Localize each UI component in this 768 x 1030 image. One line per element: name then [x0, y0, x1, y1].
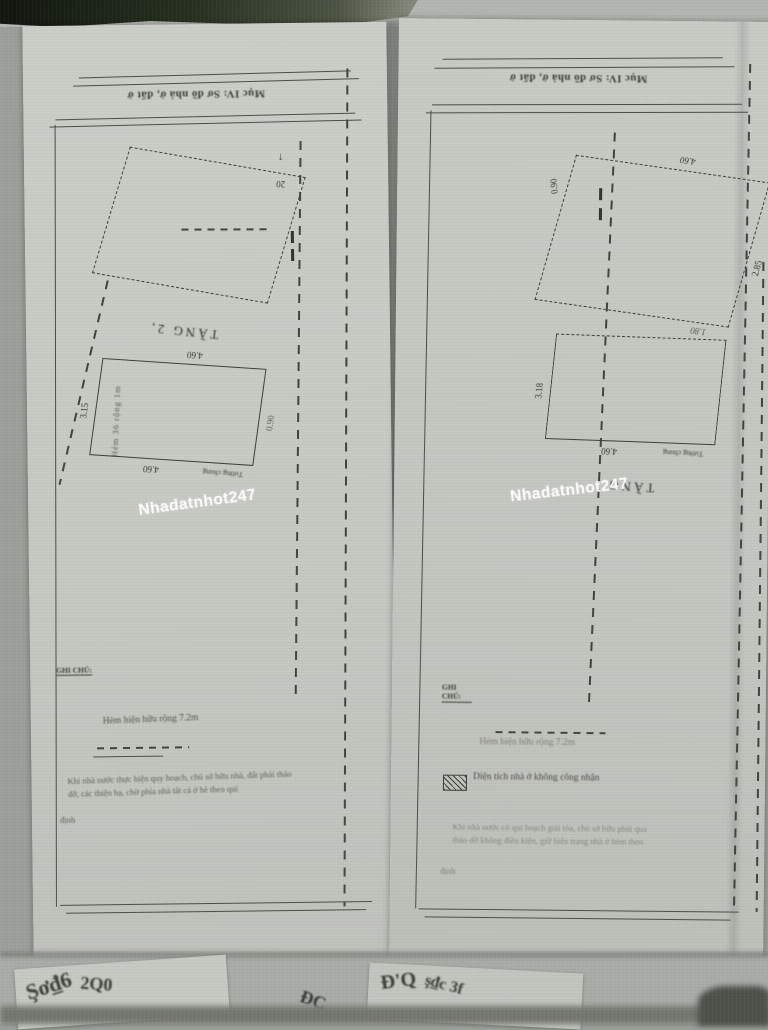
room-outline-solid: Tường chung 4.60 4.60 3.15 0.90 [89, 358, 266, 466]
section-header: Mục IV: Sơ đồ nhà ở, đất ở [81, 87, 311, 102]
top-rule-1 [443, 57, 723, 60]
shared-wall-label: Tường chung [202, 468, 244, 480]
section-header: Mục IV: Sơ đồ nhà ở, đất ở [458, 71, 698, 86]
notes-title: GHI CHÚ: [56, 665, 92, 676]
notes-paragraph-end: định [60, 814, 75, 827]
debris-text: Đ'Q [379, 968, 417, 995]
dimension-label: 0.90 [264, 415, 276, 431]
notes-section: GHI CHÚ: Hẻm hiện hữu rộng 7.2m Khi nhà … [56, 662, 389, 886]
notes-paragraph-line1: Khi nhà nước có qui hoạch giải tỏa, chủ … [452, 822, 646, 834]
frame-bottom-rule-1 [60, 901, 372, 906]
alley-note: Hẻm hiện hữu rộng 7.2m [103, 713, 199, 727]
alley-note: Hẻm hiện hữu rộng 7.2m [479, 737, 575, 748]
dimension-label: 2.85 [750, 260, 764, 277]
notes-paragraph-line2: dỡ, các thiện hạ, chờ phía nhà tất cả ở … [68, 784, 238, 800]
bottom-edge-shadow [0, 952, 768, 957]
notes-paragraph-line1: Khi nhà nước thực hiện quy hoạch, chủ sở… [67, 769, 291, 786]
room-outline-solid: Tường chung 4.60 3.18 [545, 334, 727, 446]
notes-paragraph-end: định [440, 865, 455, 878]
floorplan-left: Tường chung 4.60 4.60 3.15 0.90 TẦNG 2, [57, 122, 316, 488]
notes-paragraph: Khi nhà nước có qui hoạch giải tỏa, chủ … [452, 821, 752, 851]
hatched-area-legend-icon [443, 775, 467, 791]
top-rule-1 [79, 70, 351, 78]
frame-top-rule-1 [55, 113, 355, 121]
room-outline-dashed: 4.60 0.90 2.85 1.80 [535, 155, 768, 328]
notes-paragraph-line2: tháo dỡ không điều kiện, giữ hiện trạng … [452, 835, 643, 847]
frame-top-rule-1 [432, 104, 742, 106]
debris-text: ş₫c 3f [422, 972, 464, 999]
notes-section: GHI CHÚ: Hẻm hiện hữu rộng 7.2m Diện tíc… [428, 682, 750, 915]
floor-label: TẦNG 2, [71, 312, 296, 351]
legend-label: Diện tích nhà ở không công nhận [473, 771, 613, 785]
note-line-fragment [93, 756, 163, 758]
dimension-label: 4.60 [186, 350, 203, 361]
dimension-label: 4.60 [679, 155, 697, 167]
debris-text: 2Q0 [79, 973, 112, 996]
frame-bottom-rule-2 [66, 909, 366, 914]
dimension-label: 0.90 [548, 178, 559, 195]
right-document-sheet: Mục IV: Sơ đồ nhà ở, đất ở TẦNG Tường ch… [389, 18, 768, 970]
frame-bottom-rule-2 [425, 916, 731, 920]
dimension-label: 3.18 [533, 383, 545, 399]
inner-dashed-segment [176, 229, 266, 231]
dimension-label: 3.15 [78, 403, 90, 419]
dimension-label: 4.60 [601, 446, 618, 457]
left-document-sheet: Mục IV: Sơ đồ nhà ở, đất ở ↑ 20 Hẻm 36 r… [22, 22, 397, 962]
floorplan-right: TẦNG Tường chung 4.60 3.18 4.60 0.90 2.8… [510, 131, 768, 537]
debris-text: Şơ₫6 [23, 967, 75, 1006]
dimension-label: 1.80 [689, 325, 707, 337]
note-dash-fragment [97, 746, 189, 749]
shared-wall-label: Tường chung [662, 448, 703, 458]
notes-paragraph: Khi nhà nước thực hiện quy hoạch, chủ sở… [67, 765, 378, 802]
top-rule-2 [73, 78, 359, 87]
notes-title: GHI CHÚ: [442, 683, 472, 703]
watermark: Nhadatnhot247 [137, 486, 257, 520]
top-rule-2 [434, 66, 734, 69]
frame-top-rule-2 [426, 112, 748, 114]
dimension-label: 4.60 [142, 464, 159, 475]
bottom-right-dark-corner [698, 986, 768, 1026]
note-dash-fragment [495, 731, 605, 734]
photo-of-floorplan-documents: { "photo": { "watermark": "Nhadatnhot247… [0, 0, 768, 1024]
bottom-dark-shadow [0, 1006, 768, 1024]
room-outline-dashed [92, 147, 306, 304]
